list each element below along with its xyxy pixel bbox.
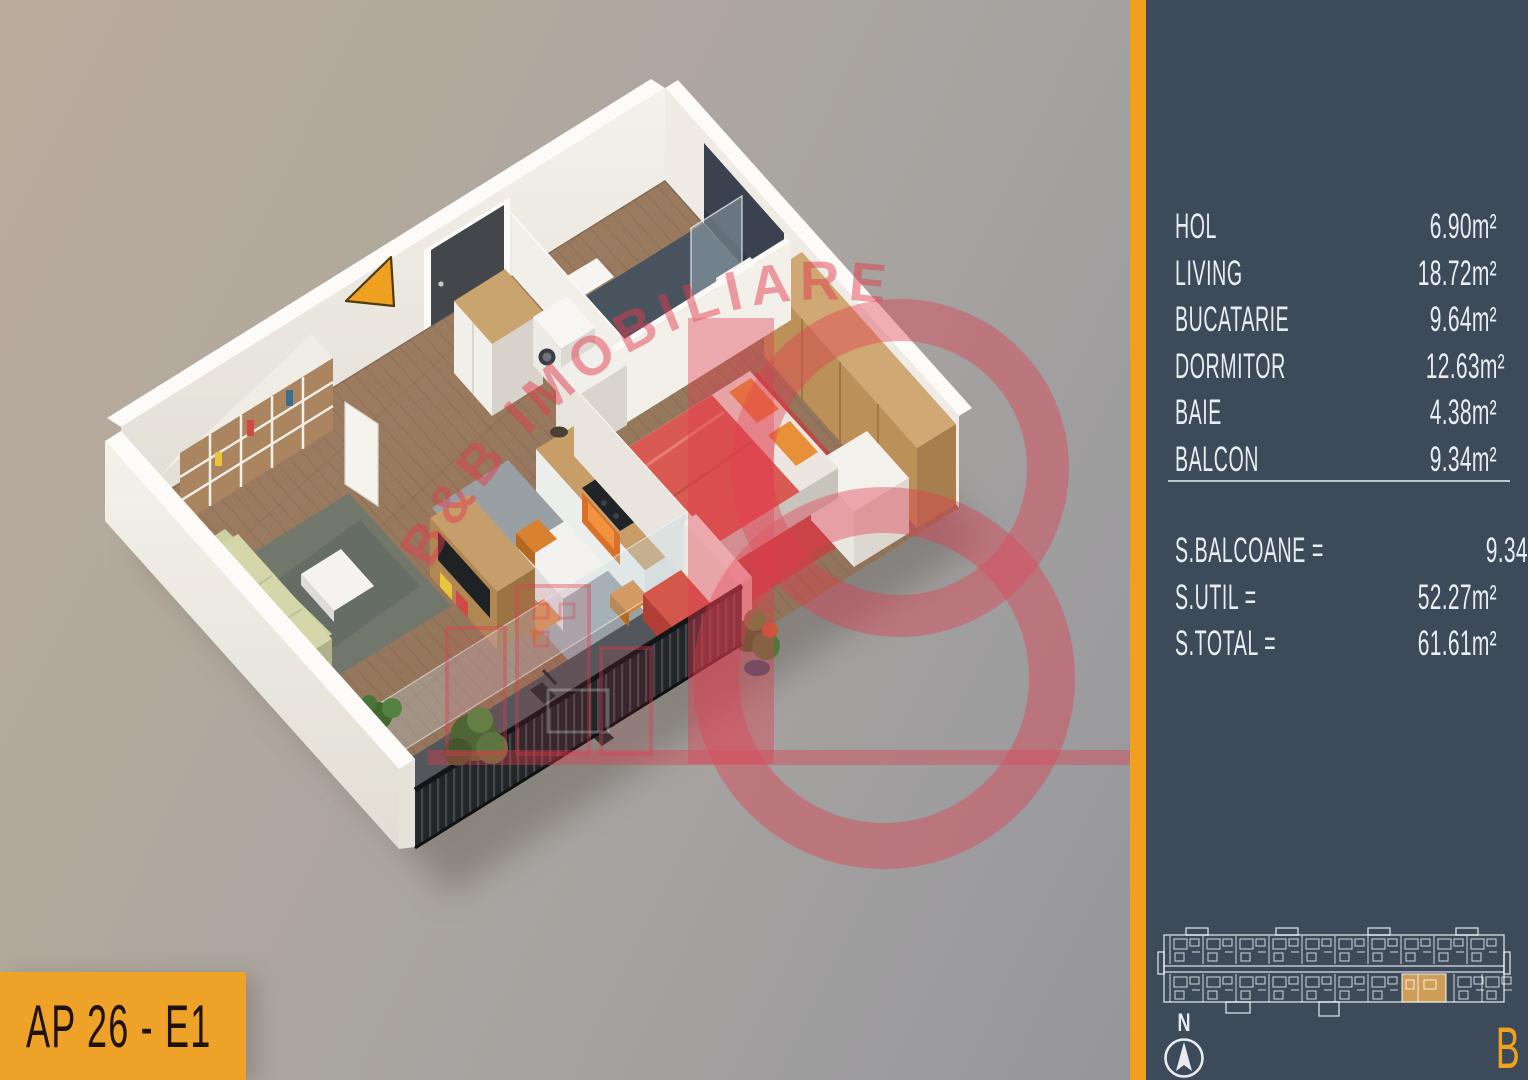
total-label: S.UTIL = bbox=[1175, 578, 1257, 618]
room-row-living: LIVING 18.72m² bbox=[1175, 251, 1497, 298]
floorplan-3d-render: B&B IMOBILIARE bbox=[0, 0, 1130, 1080]
room-area: 9.34m² bbox=[1430, 440, 1497, 480]
building-letter: B bbox=[1496, 1020, 1520, 1078]
total-row-total: S.TOTAL = 61.61m² bbox=[1175, 621, 1497, 668]
room-row-baie: BAIE 4.38m² bbox=[1175, 390, 1497, 437]
total-row-balcoane: S.BALCOANE = 9.34m² bbox=[1175, 528, 1497, 575]
room-row-dormitor: DORMITOR 12.63m² bbox=[1175, 344, 1497, 391]
total-area: 52.27m² bbox=[1418, 578, 1497, 618]
apartment-title-box: AP 26 - E1 bbox=[0, 972, 246, 1080]
divider bbox=[1168, 480, 1510, 482]
room-row-balcon: BALCON 9.34m² bbox=[1175, 437, 1497, 484]
page: B&B IMOBILIARE bbox=[0, 0, 1528, 1080]
north-compass-icon: N bbox=[1158, 1010, 1210, 1080]
total-row-util: S.UTIL = 52.27m² bbox=[1175, 575, 1497, 622]
door-handle-icon bbox=[438, 281, 443, 286]
room-area-list: HOL 6.90m² LIVING 18.72m² BUCATARIE 9.64… bbox=[1175, 204, 1497, 483]
room-row-bucatarie: BUCATARIE 9.64m² bbox=[1175, 297, 1497, 344]
room-area: 6.90m² bbox=[1430, 207, 1497, 247]
totals-list: S.BALCOANE = 9.34m² S.UTIL = 52.27m² S.T… bbox=[1175, 528, 1497, 668]
room-label: BAIE bbox=[1175, 393, 1222, 433]
building-site-plan bbox=[1156, 922, 1512, 1018]
compass-label: N bbox=[1165, 1010, 1202, 1036]
total-area: 61.61m² bbox=[1418, 624, 1497, 664]
room-label: LIVING bbox=[1175, 254, 1243, 294]
room-area: 18.72m² bbox=[1418, 254, 1497, 294]
floorplan-svg: B&B IMOBILIARE bbox=[0, 0, 1130, 1080]
sidebar: HOL 6.90m² LIVING 18.72m² BUCATARIE 9.64… bbox=[1146, 0, 1528, 1080]
room-area: 4.38m² bbox=[1430, 393, 1497, 433]
total-label: S.TOTAL = bbox=[1175, 624, 1276, 664]
room-label: DORMITOR bbox=[1175, 347, 1286, 387]
total-label: S.BALCOANE = bbox=[1175, 531, 1324, 571]
room-row-hol: HOL 6.90m² bbox=[1175, 204, 1497, 251]
room-label: BUCATARIE bbox=[1175, 300, 1289, 340]
room-area: 12.63m² bbox=[1426, 347, 1505, 387]
compass-circle bbox=[1161, 1036, 1207, 1080]
accent-stripe bbox=[1130, 0, 1146, 1080]
apartment-title: AP 26 - E1 bbox=[26, 992, 211, 1061]
room-area: 9.64m² bbox=[1430, 300, 1497, 340]
total-area: 9.34m² bbox=[1486, 531, 1528, 571]
room-label: HOL bbox=[1175, 207, 1217, 247]
room-label: BALCON bbox=[1175, 440, 1259, 480]
